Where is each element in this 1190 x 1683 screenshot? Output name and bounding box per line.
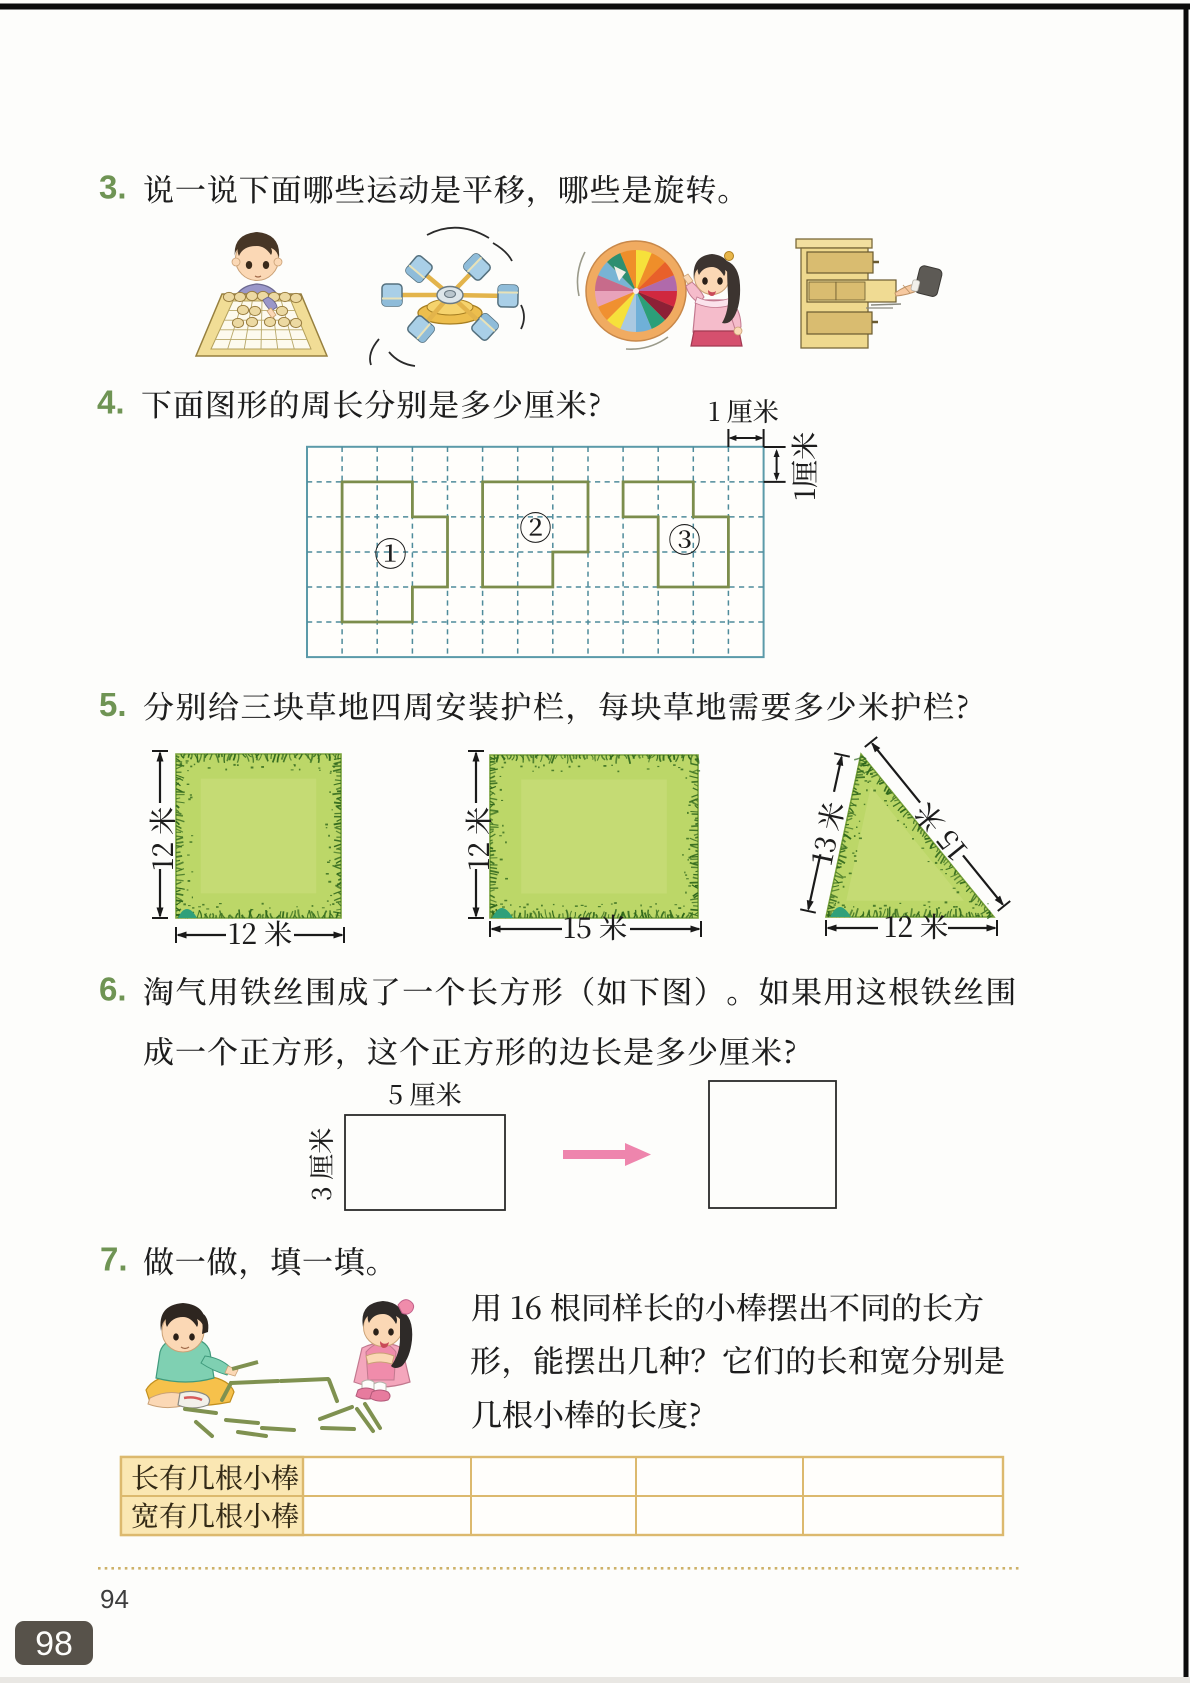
svg-text:94: 94 — [100, 1584, 129, 1614]
svg-text:98: 98 — [35, 1625, 73, 1663]
svg-text:4.: 4. — [97, 384, 125, 421]
svg-text:7.: 7. — [100, 1241, 128, 1278]
svg-text:5.: 5. — [99, 686, 127, 723]
svg-text:6.: 6. — [99, 971, 127, 1008]
svg-text:3.: 3. — [99, 169, 127, 206]
